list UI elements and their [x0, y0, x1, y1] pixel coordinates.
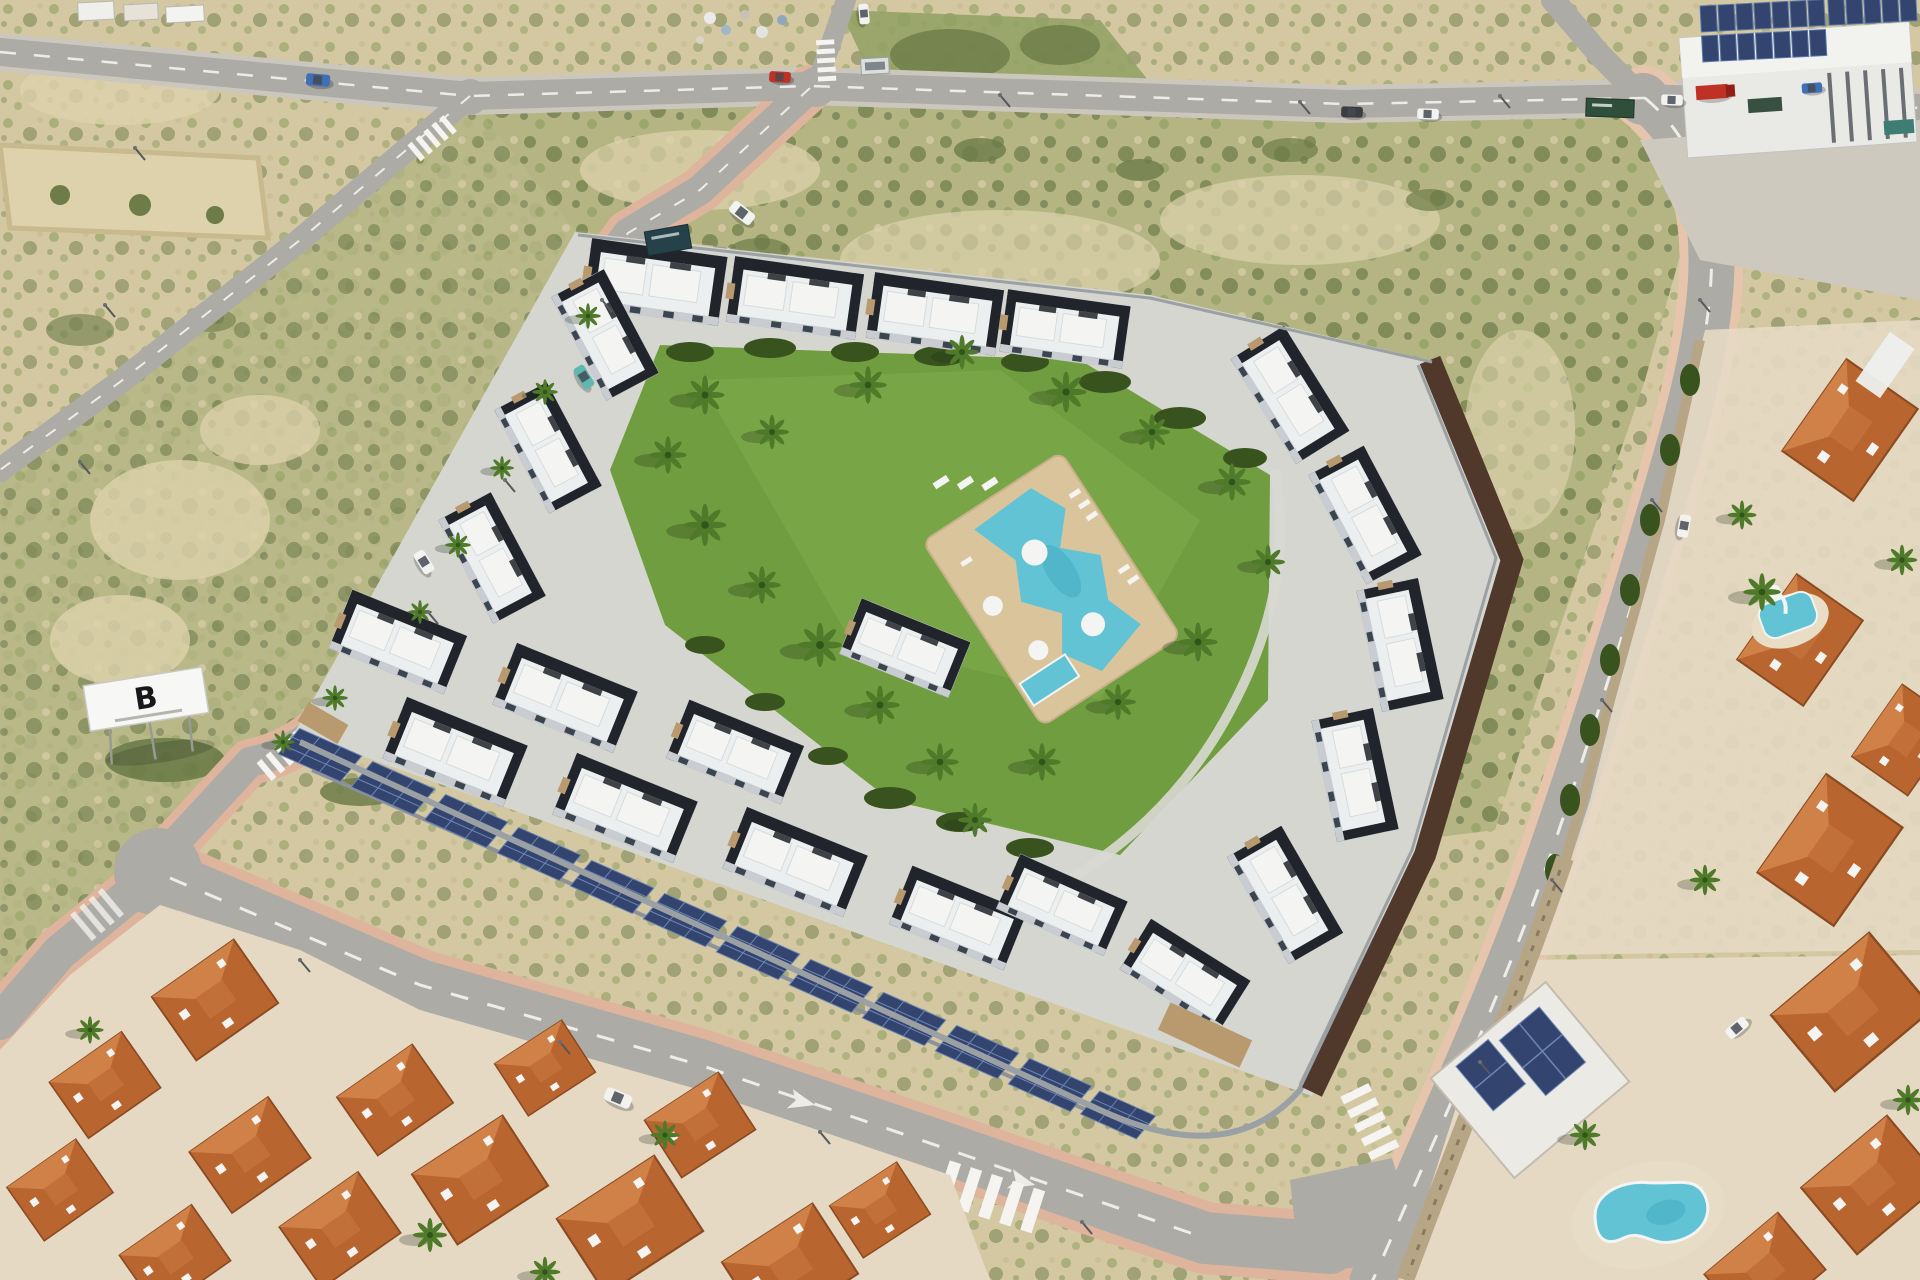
highway-sign — [1586, 98, 1635, 118]
aerial-photo: B — [0, 0, 1920, 1280]
container — [1884, 119, 1915, 135]
bus-shelter — [861, 57, 890, 74]
container — [1748, 97, 1783, 113]
walled-dirt-lot — [0, 145, 268, 238]
